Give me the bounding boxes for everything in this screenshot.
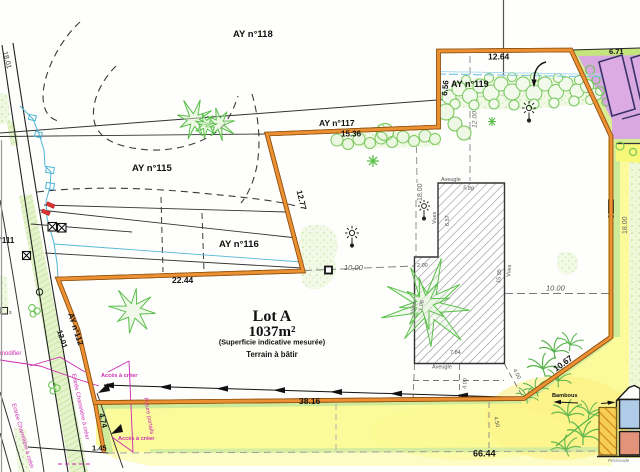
svg-text:'111: '111 — [0, 236, 15, 245]
svg-text:Vues: Vues — [506, 264, 513, 277]
svg-text:6.57: 6.57 — [445, 215, 451, 226]
svg-text:Aveugle: Aveugle — [441, 177, 461, 183]
svg-text:AY n°116: AY n°116 — [219, 239, 259, 250]
svg-text:Aveugle: Aveugle — [432, 365, 452, 371]
svg-text:modifier: modifier — [0, 351, 21, 357]
svg-text:1.45: 1.45 — [92, 444, 107, 453]
svg-text:Terrain à bâtir: Terrain à bâtir — [246, 350, 297, 359]
svg-text:10,00: 10,00 — [344, 263, 364, 272]
svg-text:22.44: 22.44 — [172, 275, 194, 285]
svg-text:66.44: 66.44 — [473, 449, 496, 459]
svg-text:AY n°117: AY n°117 — [319, 118, 355, 128]
svg-text:Accès à créer: Accès à créer — [118, 436, 155, 442]
svg-text:18.00: 18.00 — [417, 183, 424, 201]
svg-text:7.84: 7.84 — [450, 350, 461, 356]
svg-text:4.00: 4.00 — [462, 378, 469, 389]
svg-text:12.64: 12.64 — [488, 52, 510, 62]
svg-text:12.00: 12.00 — [472, 111, 479, 128]
svg-text:15.36: 15.36 — [341, 130, 362, 139]
svg-text:15.95: 15.95 — [496, 269, 503, 283]
svg-text:Vues: Vues — [432, 211, 438, 224]
svg-text:Bambous: Bambous — [552, 393, 578, 399]
svg-text:AY n°118: AY n°118 — [233, 29, 273, 40]
svg-text:(Superficie indicative mesur: (Superficie indicative mesurée) — [219, 338, 326, 347]
svg-text:Lot A: Lot A — [253, 308, 292, 325]
svg-text:Périssode: Périssode — [608, 458, 630, 464]
svg-text:38.16: 38.16 — [299, 396, 321, 406]
svg-text:10.00: 10.00 — [546, 284, 566, 293]
svg-text:6.56: 6.56 — [440, 79, 451, 96]
svg-text:6.71: 6.71 — [609, 47, 624, 56]
svg-text:2.00: 2.00 — [417, 263, 428, 269]
svg-text:18.00: 18.00 — [622, 216, 629, 234]
svg-text:AY n°115: AY n°115 — [132, 163, 172, 174]
svg-text:Accès à créer: Accès à créer — [101, 373, 138, 379]
svg-text:AY n°119: AY n°119 — [451, 79, 489, 89]
